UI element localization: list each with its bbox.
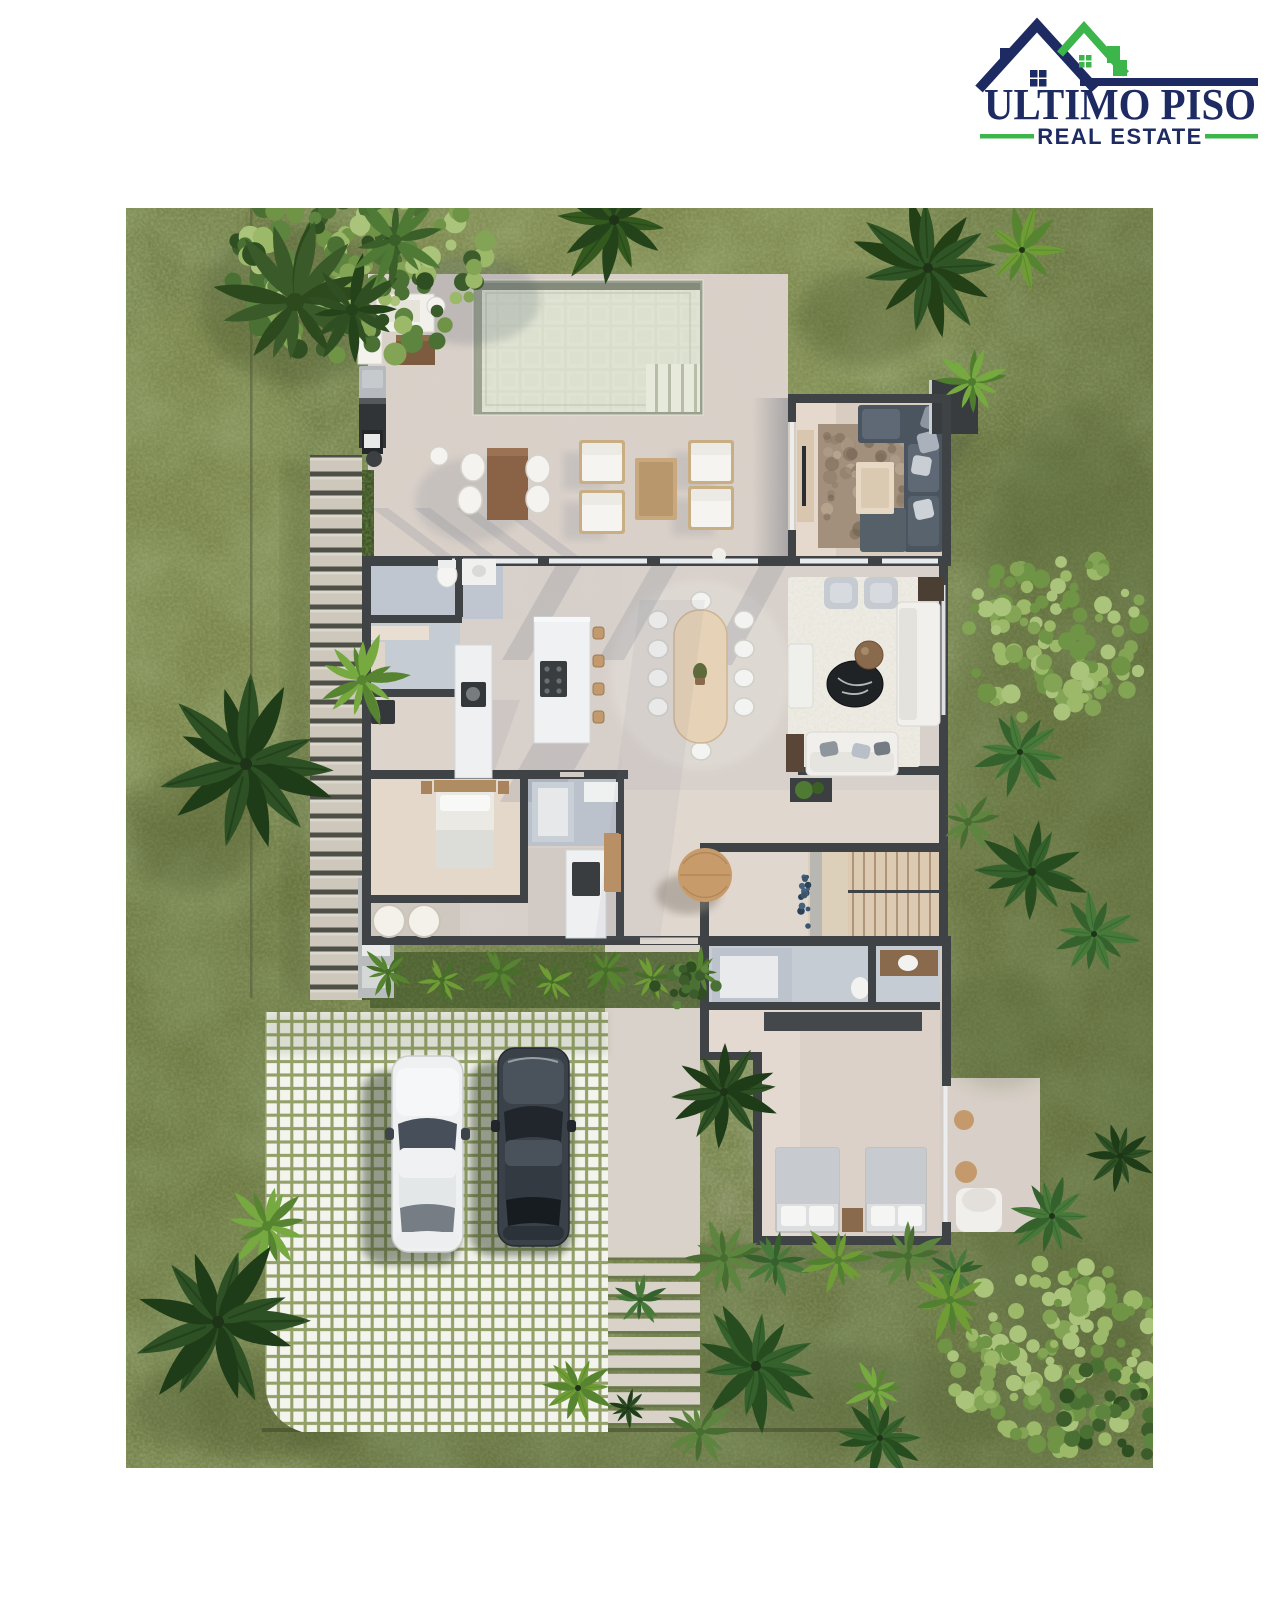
svg-text:ULTIMO PISO: ULTIMO PISO [984, 80, 1256, 129]
svg-text:REAL ESTATE: REAL ESTATE [1037, 124, 1203, 149]
